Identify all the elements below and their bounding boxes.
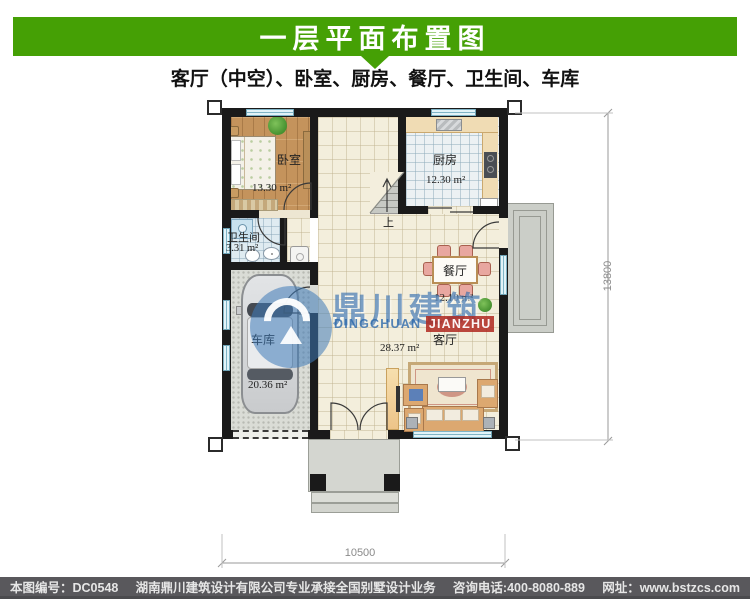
terrace-door-threshold (499, 218, 508, 248)
corner-column-tr (507, 100, 522, 115)
side-table (483, 417, 495, 429)
porch-step-2 (311, 503, 399, 513)
plant (478, 298, 492, 312)
car-mirror (236, 306, 242, 315)
dim-label-width: 10500 (330, 547, 390, 559)
page: 一层平面布置图 客厅（中空）、卧室、厨房、餐厅、卫生间、车库 (0, 0, 750, 599)
burner-icon (487, 166, 494, 173)
dining-label: 餐厅 (443, 262, 467, 279)
corner-column-bl (208, 437, 223, 452)
blanket-fold (244, 137, 245, 189)
room-label-garage: 车库 (251, 331, 275, 348)
room-area-bathroom: 3.31 m² (226, 243, 258, 254)
pillow (231, 140, 241, 161)
wall-kitchen-left (398, 108, 406, 214)
corner-column-br (505, 436, 520, 451)
stove (484, 152, 497, 178)
wall-bedroom-bottom-a (222, 210, 259, 218)
room-area-garage: 20.36 m² (248, 379, 287, 391)
tv (396, 386, 400, 412)
sofa-throw-blue (409, 389, 423, 401)
drain-dot (271, 253, 273, 255)
drawing-number: 本图编号：DC0548 (10, 577, 118, 596)
wall-kitchen-bottom-a (398, 206, 428, 214)
company-slogan: 湖南鼎川建筑设计有限公司专业承接全国别墅设计业务 (136, 577, 436, 596)
page-title: 一层平面布置图 (260, 17, 491, 56)
wall-right-upper (499, 108, 508, 218)
entrance-threshold (330, 430, 388, 439)
porch-step-1 (311, 492, 399, 503)
wall-bathroom-garage (222, 262, 318, 270)
kitchen-window (431, 109, 476, 116)
stairs-up-label: 上 (383, 214, 394, 230)
room-label-bedroom: 卧室 (277, 151, 301, 168)
car-windshield (247, 303, 293, 317)
website-url: 网址：www.bstzcs.com (602, 577, 740, 596)
sofa-cushion (444, 409, 461, 421)
garage-rollup-door (233, 430, 308, 439)
room-area-kitchen: 12.30 m² (426, 174, 465, 186)
dining-table: 餐厅 (432, 256, 478, 284)
wall-garage-right-a (310, 270, 318, 285)
dim-label-height: 13800 (602, 246, 614, 306)
title-bar: 一层平面布置图 (13, 17, 737, 56)
sofa-cushion (481, 385, 495, 398)
wall-left (222, 108, 231, 439)
wall-garage-right-b (310, 313, 318, 439)
pillow (231, 164, 241, 185)
side-table (406, 417, 418, 429)
wall-bathroom-right (280, 218, 287, 262)
terrace-stub-bottom (499, 324, 507, 333)
wall-bedroom-bottom-b (311, 210, 318, 218)
kitchen-door-threshold (428, 206, 473, 214)
porch-column-left (310, 474, 326, 491)
phone-number: 咨询电话:400-8080-889 (453, 577, 585, 596)
car-mirror (298, 306, 304, 315)
side-terrace-step-inner (519, 216, 541, 320)
terrace-stub-top (499, 203, 507, 212)
room-area-dining: 12.10 m² (434, 292, 473, 304)
sofa-cushion (426, 409, 443, 421)
wall-bedroom-right (310, 108, 318, 218)
room-list-subtitle: 客厅（中空）、卧室、厨房、餐厅、卫生间、车库 (0, 64, 750, 91)
sofa-single-left (403, 384, 428, 406)
sofa-single-right (477, 379, 498, 408)
burner-icon (487, 155, 494, 162)
sofa-cushion (462, 409, 479, 421)
room-area-bedroom: 13.30 m² (252, 182, 291, 194)
room-label-kitchen: 厨房 (433, 151, 457, 168)
sofa-three-seat (422, 406, 484, 432)
room-label-living: 客厅 (433, 331, 457, 348)
garage-window-1 (223, 300, 230, 330)
room-area-living: 28.37 m² (380, 342, 419, 354)
dining-window (500, 255, 507, 295)
wall-bottom-a (222, 430, 233, 439)
porch-column-right (384, 474, 400, 491)
garage-window-2 (223, 345, 230, 371)
footer-bar: 本图编号：DC0548 湖南鼎川建筑设计有限公司专业承接全国别墅设计业务 咨询电… (0, 577, 750, 599)
washer-door-icon (296, 253, 304, 261)
plant (268, 116, 287, 135)
garage-door-threshold (310, 285, 318, 313)
coffee-table (438, 377, 466, 392)
kitchen-sink (436, 119, 462, 131)
living-window (413, 431, 492, 438)
bedroom-door-threshold (259, 210, 311, 218)
dining-chair (478, 262, 491, 276)
bedroom-window (246, 109, 294, 116)
bathroom-sink (263, 247, 280, 260)
corner-column-tl (207, 100, 222, 115)
